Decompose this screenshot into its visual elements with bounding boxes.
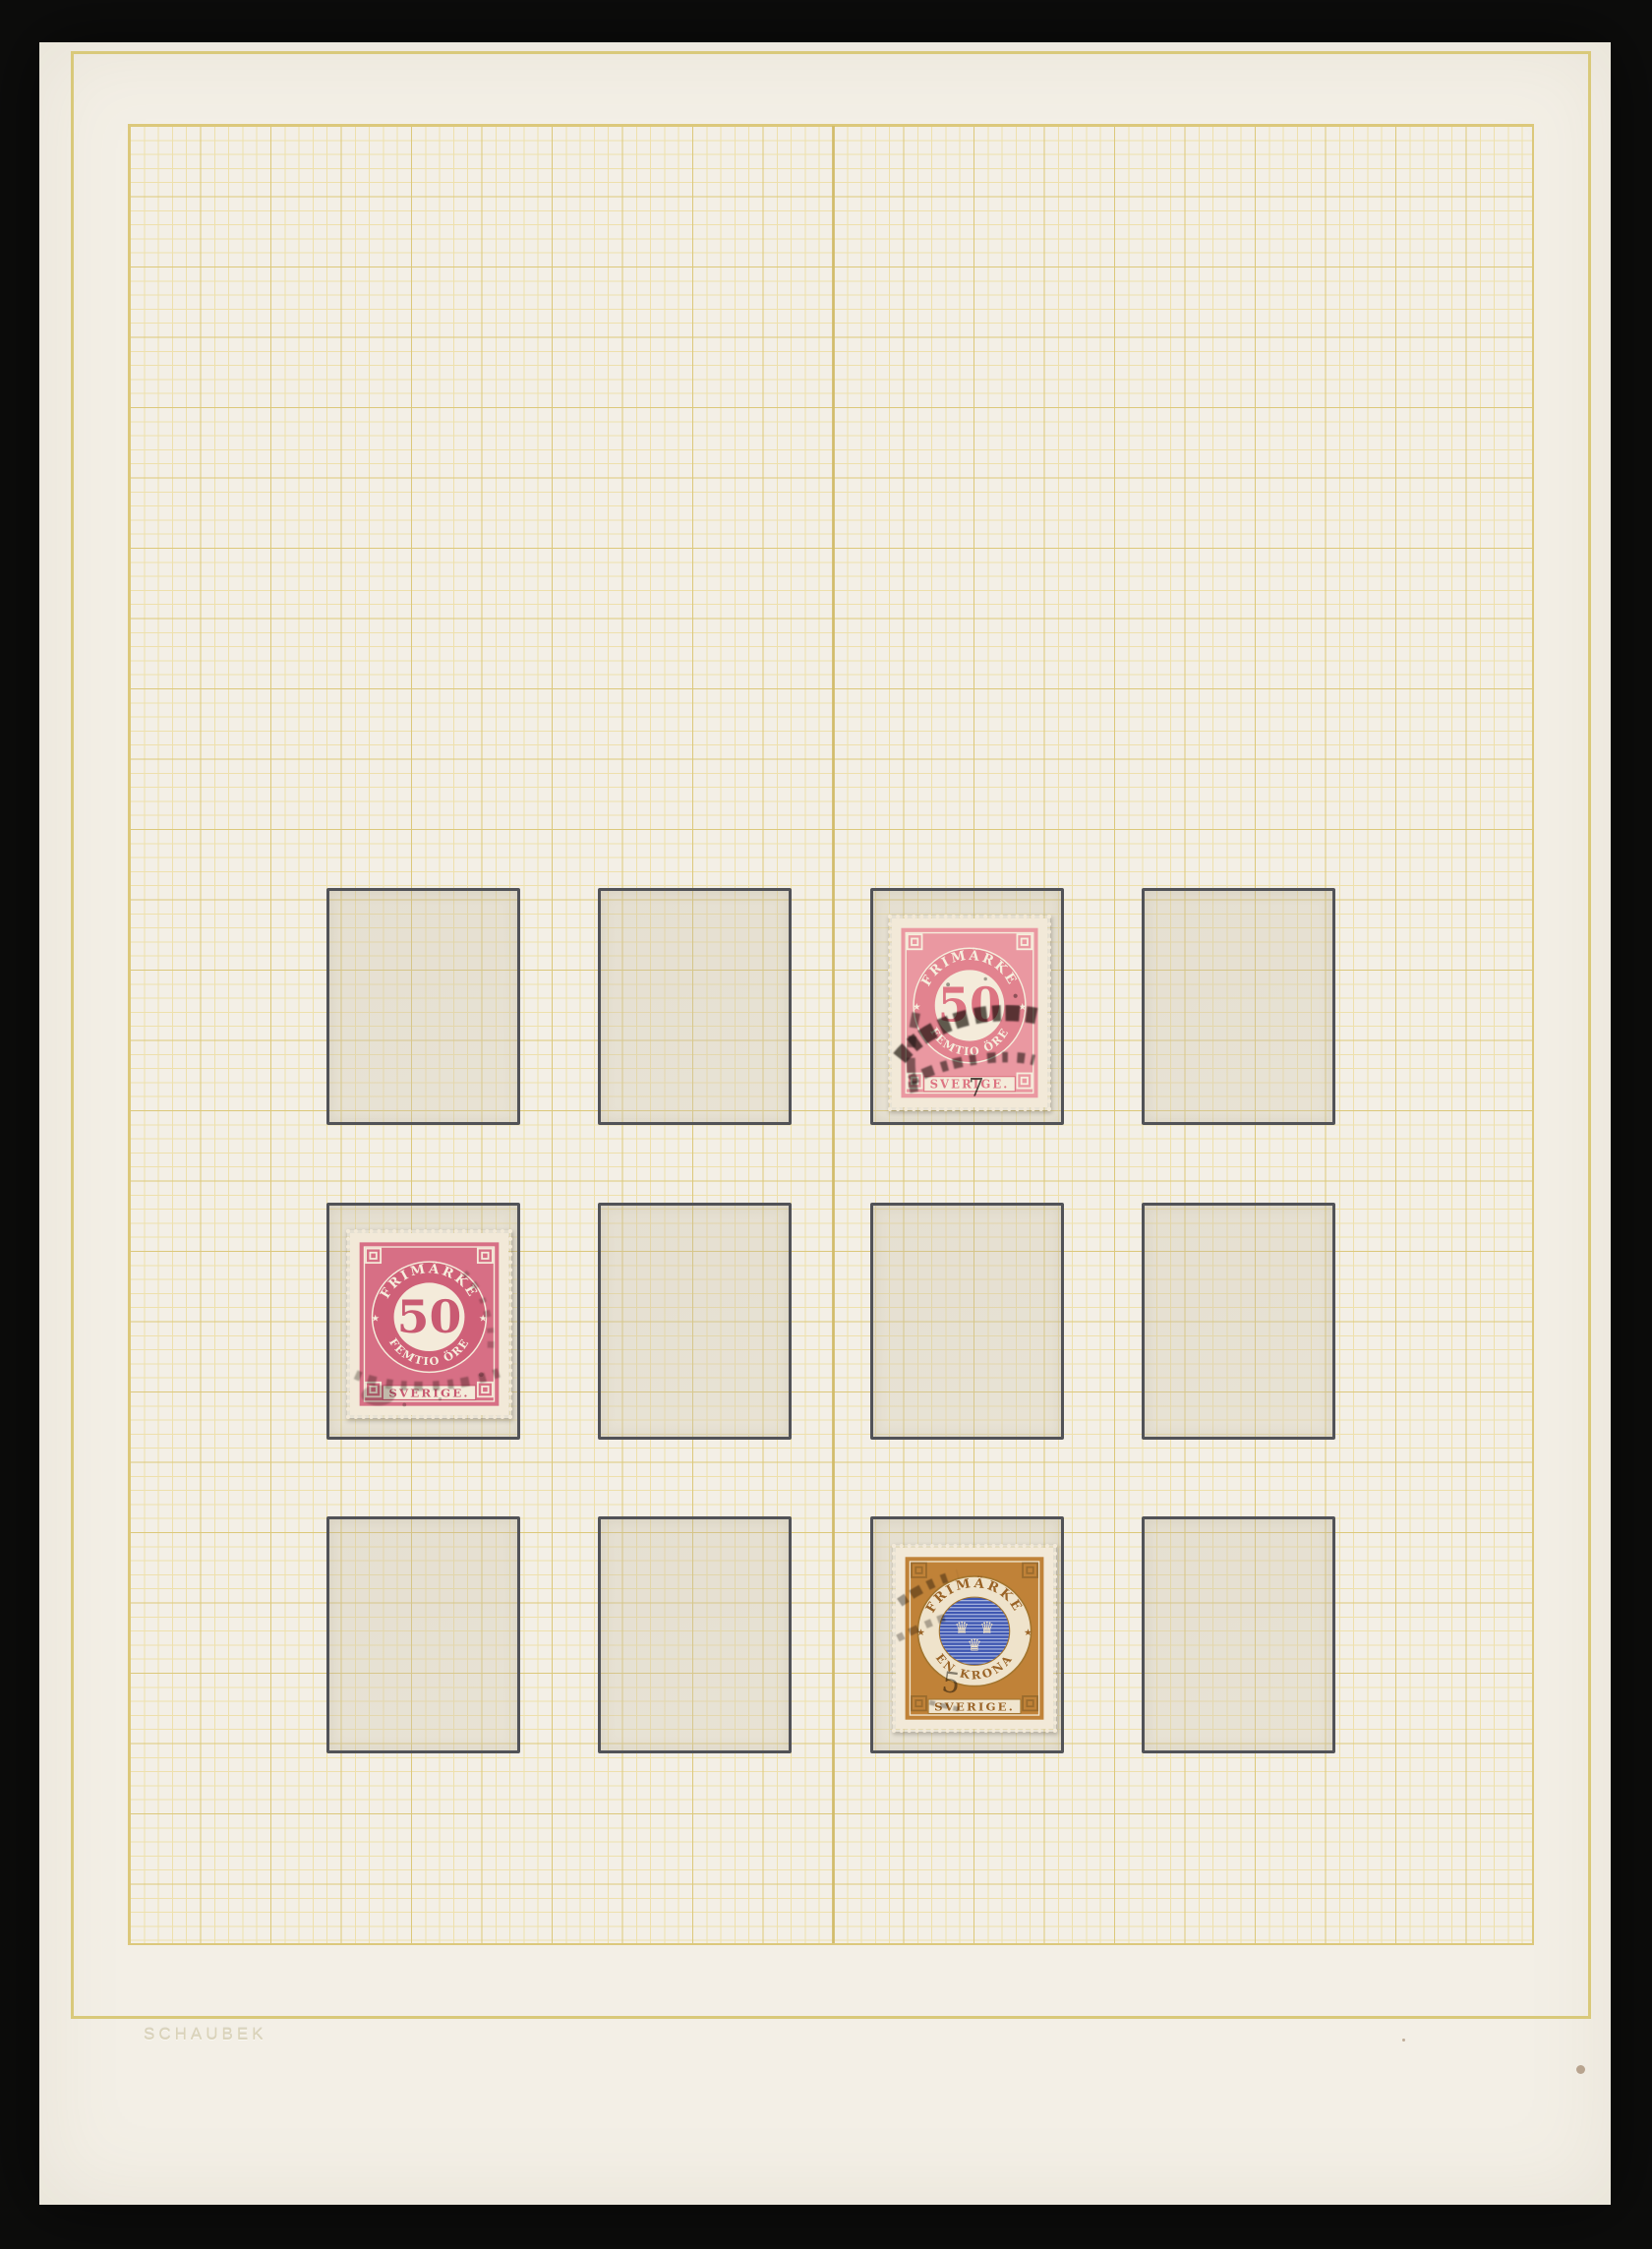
- photo-backdrop: FRIMÄRKE FEMTIO ÖRE ★ ★ 50 SVERIGE.: [0, 0, 1652, 2249]
- stamp-mount-r2c3: [870, 1203, 1064, 1440]
- stamp-mount-r2c1: FRIMÄRKE FEMTIO ÖRE ★ ★ 50 SVERIGE.: [326, 1203, 520, 1440]
- stamp-mount-r2c4: [1142, 1203, 1335, 1440]
- stamp-1-krona: ♛ ♛ ♛ FRIMÄRKE EN KRONA ★ ★ SVERIGE.: [892, 1544, 1057, 1733]
- stamp-50-ore-light-cancel: FRIMÄRKE FEMTIO ÖRE ★ ★ 50 SVERIGE.: [346, 1229, 512, 1419]
- paper-speck: [1402, 2039, 1405, 2042]
- cancel-numeral: 5: [940, 1665, 963, 1700]
- grid-center-line: [832, 126, 835, 1943]
- stamp-mount-r3c4: [1142, 1516, 1335, 1753]
- stamp-mount-r1c1: [326, 888, 520, 1125]
- stamp-mount-r3c3: ♛ ♛ ♛ FRIMÄRKE EN KRONA ★ ★ SVERIGE.: [870, 1516, 1064, 1753]
- album-page: FRIMÄRKE FEMTIO ÖRE ★ ★ 50 SVERIGE.: [39, 42, 1611, 2205]
- postmark-overlay: [350, 1233, 508, 1415]
- stamp-mount-r3c1: [326, 1516, 520, 1753]
- postmark-overlay: 7: [892, 918, 1047, 1107]
- stamp-50-ore-heavy-cancel: FRIMÄRKE FEMTIO ÖRE ★ ★ 50 SVERIGE.: [888, 915, 1051, 1111]
- postmark-overlay: 5: [896, 1548, 1053, 1729]
- stamp-mount-r1c4: [1142, 888, 1335, 1125]
- stamp-mount-r1c3: FRIMÄRKE FEMTIO ÖRE ★ ★ 50 SVERIGE.: [870, 888, 1064, 1125]
- cancel-numeral: 7: [969, 1073, 984, 1101]
- paper-speck: [1576, 2065, 1585, 2074]
- album-brand-watermark: SCHAUBEK: [144, 2025, 267, 2044]
- stamp-mount-r3c2: [598, 1516, 792, 1753]
- stamp-mount-r1c2: [598, 888, 792, 1125]
- stamp-mount-r2c2: [598, 1203, 792, 1440]
